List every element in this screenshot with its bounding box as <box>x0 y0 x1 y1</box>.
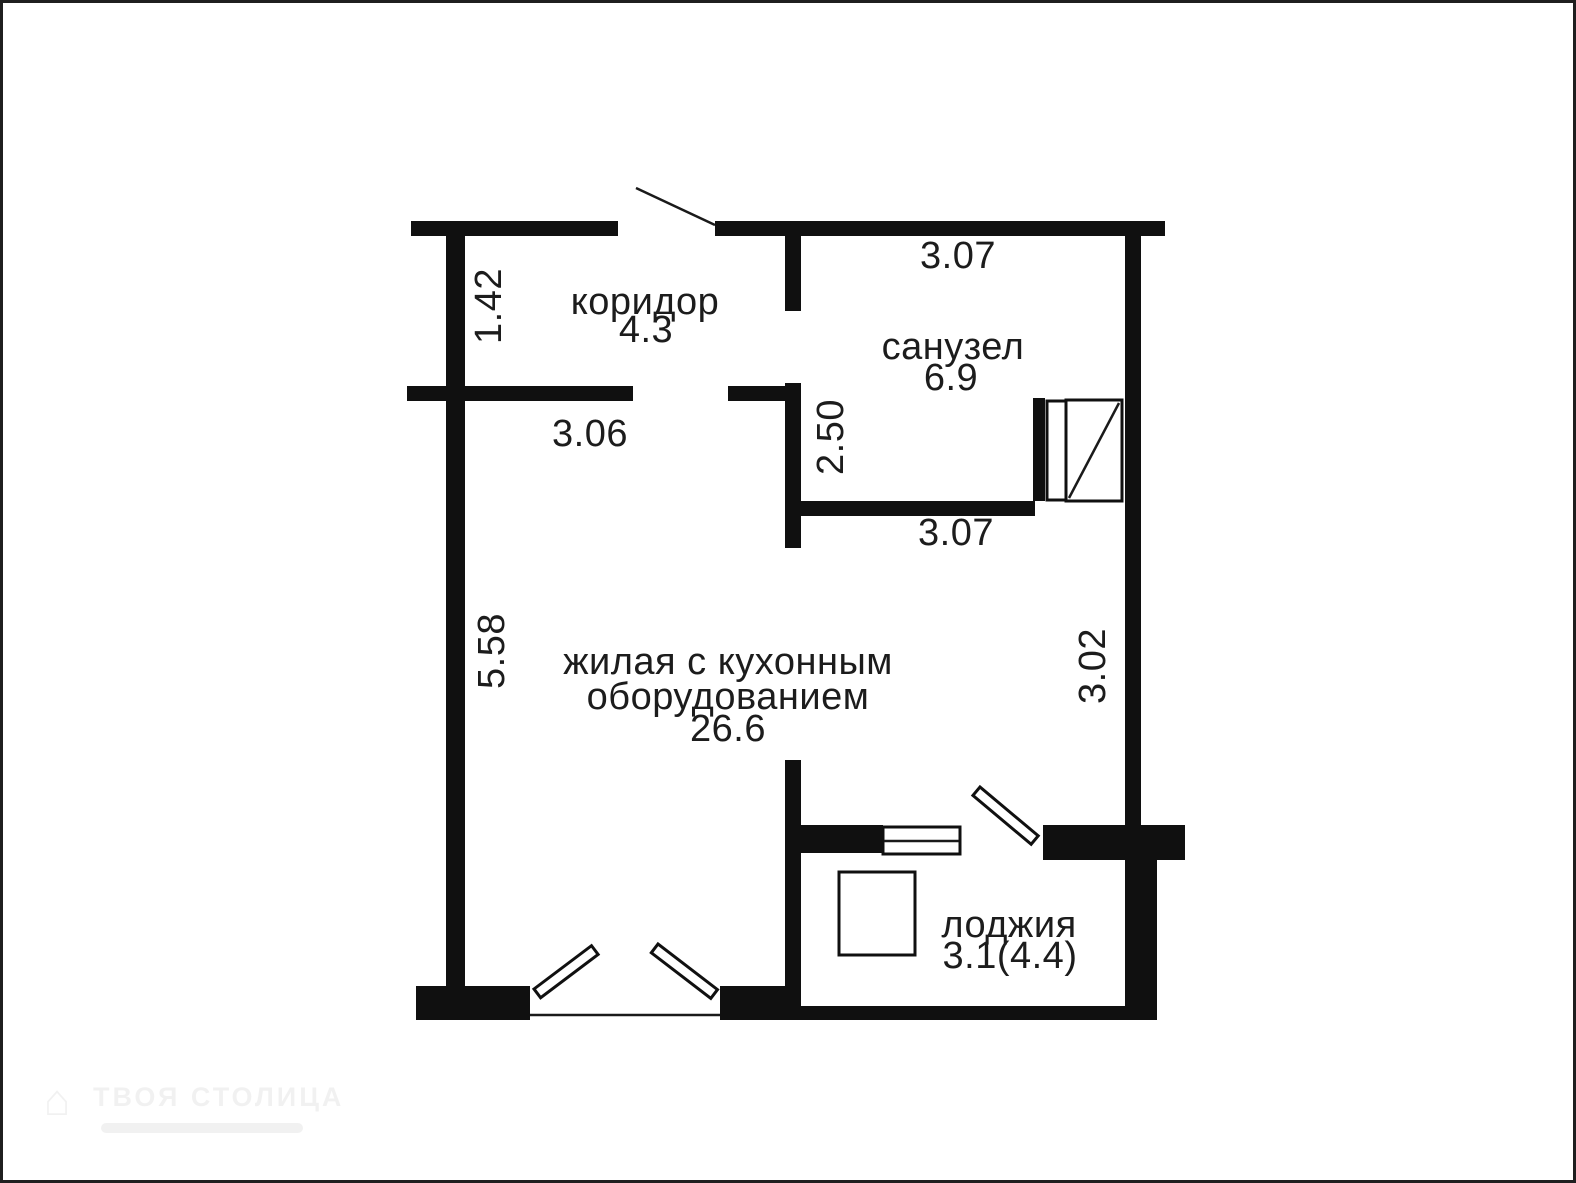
window-sash-right <box>651 944 717 998</box>
loggia-right-wall <box>1125 860 1157 1020</box>
loggia-north-wall-left <box>801 825 883 853</box>
exterior-wall-right <box>1125 236 1141 825</box>
dim-bathroom-top-width: 3.07 <box>920 237 996 275</box>
room-area-living: 26.6 <box>690 710 766 748</box>
dim-corridor-bottom-width: 3.06 <box>552 415 628 453</box>
house-icon <box>33 1081 81 1121</box>
watermark: ТВОЯ СТОЛИЦА <box>33 1081 344 1133</box>
loggia-bottom-wall <box>801 1006 1157 1020</box>
window-sash-left <box>534 946 598 998</box>
floorplan-drawing <box>3 3 1576 1183</box>
exterior-wall-top-right <box>715 221 1165 236</box>
exterior-wall-top-left <box>411 221 618 236</box>
entry-door-swing-line <box>636 188 715 225</box>
bottom-right-wall-block <box>720 986 801 1020</box>
room-area-bathroom: 6.9 <box>924 359 978 397</box>
loggia-cabinet <box>839 872 915 955</box>
dim-living-right-height: 3.02 <box>1074 628 1112 704</box>
exterior-wall-left <box>446 221 465 986</box>
balcony-door-leaf <box>973 787 1038 844</box>
watermark-agency-name: ТВОЯ СТОЛИЦА <box>93 1081 344 1113</box>
bottom-left-wall-block <box>416 986 530 1020</box>
watermark-subline <box>101 1123 303 1133</box>
dim-bathroom-wall-height: 2.50 <box>812 399 850 475</box>
living-loggia-wall <box>785 760 801 986</box>
room-area-corridor: 4.3 <box>619 311 673 349</box>
dim-bathroom-bottom-width: 3.07 <box>918 514 994 552</box>
loggia-north-wall-right <box>1043 825 1185 860</box>
floorplan-page: коридор 4.3 санузел 6.9 жилая с кухонным… <box>0 0 1576 1183</box>
bathroom-partition-wall <box>785 383 801 548</box>
dim-living-left-height: 5.58 <box>473 613 511 689</box>
corridor-bottom-wall <box>407 386 633 401</box>
corridor-bathroom-wall-stub <box>785 236 801 311</box>
room-area-loggia: 3.1(4.4) <box>943 937 1078 975</box>
dim-corridor-left-height: 1.42 <box>470 268 508 344</box>
shower-stub-wall <box>1033 398 1045 501</box>
shower-screen <box>1047 401 1066 500</box>
